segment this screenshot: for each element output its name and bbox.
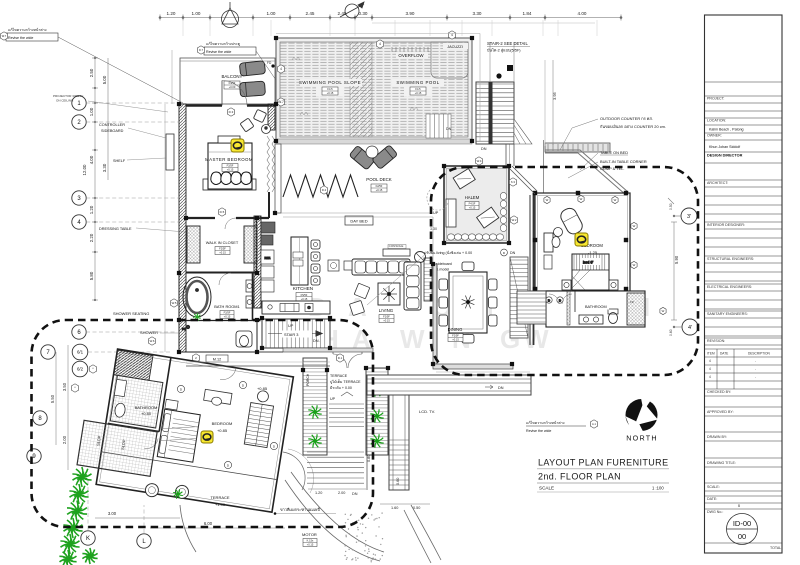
- svg-text:F2/5F: F2/5F: [452, 334, 459, 338]
- svg-text:K: K: [86, 536, 90, 542]
- svg-text:4: 4: [709, 367, 711, 371]
- svg-text:DESCRIPTION: DESCRIPTION: [748, 352, 770, 356]
- svg-text:แก้ไขความกว้างหน้าต่าง: แก้ไขความกว้างหน้าต่าง: [8, 27, 47, 32]
- svg-text:0.60: 0.60: [396, 478, 400, 485]
- svg-text:F2/5F: F2/5F: [224, 311, 231, 315]
- svg-text:DRAWN BY:: DRAWN BY:: [707, 435, 727, 439]
- svg-text:1.20: 1.20: [167, 11, 176, 16]
- svg-text:UP: UP: [433, 211, 439, 215]
- svg-text:W.5: W.5: [172, 301, 177, 305]
- svg-text:PROJECT:: PROJECT:: [707, 97, 725, 101]
- svg-text:Revise the wide: Revise the wide: [526, 429, 551, 433]
- svg-text:FD: FD: [267, 61, 272, 65]
- svg-text:B: B: [738, 504, 740, 508]
- svg-text:bed 6': bed 6': [583, 261, 594, 265]
- svg-text:MOTOR: MOTOR: [302, 532, 317, 537]
- svg-text:SIDEBOARD: SIDEBOARD: [101, 129, 124, 133]
- svg-text:3': 3': [687, 214, 691, 220]
- svg-text:STAIR 3: STAIR 3: [284, 332, 298, 337]
- svg-text:LOCATION:: LOCATION:: [707, 119, 726, 123]
- svg-text:3.95: 3.95: [552, 91, 557, 100]
- svg-text:ON CEILING: ON CEILING: [56, 99, 74, 103]
- svg-text:DATE:: DATE:: [707, 497, 717, 501]
- svg-text:TERRACE: TERRACE: [330, 374, 348, 378]
- svg-text:4: 4: [709, 375, 711, 379]
- svg-text:-: -: [755, 359, 756, 363]
- svg-text:+0.85: +0.85: [217, 428, 228, 433]
- svg-text:Revise the wide: Revise the wide: [206, 50, 231, 54]
- svg-text:DN: DN: [481, 147, 487, 151]
- svg-text:DATE: DATE: [720, 352, 728, 356]
- svg-text:Revise the wide: Revise the wide: [8, 36, 33, 40]
- svg-text:+0.15: +0.15: [301, 297, 308, 301]
- svg-text:WALK IN CLOSET: WALK IN CLOSET: [206, 240, 239, 245]
- svg-text:6/1: 6/1: [77, 350, 84, 355]
- svg-text:1.20: 1.20: [89, 205, 94, 214]
- svg-text:HALEM: HALEM: [465, 195, 480, 200]
- svg-text:F5/5F: F5/5F: [301, 293, 308, 297]
- svg-text:+0.15: +0.15: [227, 167, 234, 171]
- svg-text:+0.00: +0.00: [229, 85, 236, 89]
- svg-text:F2/5F: F2/5F: [227, 164, 234, 168]
- svg-text:1.00: 1.00: [267, 11, 276, 16]
- svg-text:DESIGN DIRECTOR: DESIGN DIRECTOR: [707, 154, 743, 158]
- svg-text:UP: UP: [288, 323, 294, 328]
- svg-text:+1.00: +1.00: [215, 502, 226, 507]
- svg-text:INTERIOR DESIGNER:: INTERIOR DESIGNER:: [707, 223, 745, 227]
- svg-text:JACUZZI: JACUZZI: [447, 45, 463, 49]
- svg-text:1.00: 1.00: [89, 107, 94, 116]
- svg-text:12.00: 12.00: [82, 164, 87, 176]
- svg-text:2.20: 2.20: [89, 233, 94, 242]
- svg-text:W: W: [633, 224, 636, 228]
- svg-text:4.00: 4.00: [578, 11, 587, 16]
- svg-text:+0.85: +0.85: [257, 386, 268, 391]
- svg-text:6.00: 6.00: [204, 521, 213, 526]
- svg-text:แก้ไขความกว้างประตู: แก้ไขความกว้างประตู: [206, 41, 241, 46]
- svg-text:+0.15: +0.15: [327, 91, 334, 95]
- svg-text:UP: UP: [330, 397, 336, 401]
- svg-text:LIVING: LIVING: [379, 308, 394, 313]
- svg-text:D.7: D.7: [199, 48, 204, 52]
- svg-text:F2/5F: F2/5F: [383, 315, 390, 319]
- svg-text:+0.15: +0.15: [219, 250, 226, 254]
- svg-text:W: W: [662, 309, 665, 313]
- svg-text:DRESSING TABLE: DRESSING TABLE: [99, 227, 132, 231]
- svg-text:0.50: 0.50: [413, 506, 420, 510]
- svg-text:W: W: [400, 324, 425, 354]
- svg-text:W: W: [580, 197, 583, 201]
- svg-text:PROJECTOR 300BTU: PROJECTOR 300BTU: [53, 94, 83, 98]
- svg-text:DN.: DN.: [313, 338, 320, 343]
- svg-text:BATHROOM: BATHROOM: [585, 305, 607, 309]
- svg-text:3.30: 3.30: [473, 11, 482, 16]
- svg-text:Khun Johan Siddolf: Khun Johan Siddolf: [709, 145, 740, 149]
- svg-text:4: 4: [280, 67, 282, 71]
- svg-text:1 :100: 1 :100: [652, 486, 664, 491]
- svg-text:0.80: 0.80: [367, 455, 371, 462]
- svg-text:ELECTRICAL ENGINEERS:: ELECTRICAL ENGINEERS:: [707, 285, 752, 289]
- svg-text:W.2: W.2: [512, 218, 517, 222]
- svg-text:1.84: 1.84: [523, 11, 532, 16]
- svg-text:DN: DN: [446, 127, 452, 131]
- svg-text:TOTAL:: TOTAL:: [770, 546, 782, 550]
- svg-text:1.20: 1.20: [315, 491, 322, 495]
- svg-text:D.3: D.3: [229, 110, 234, 114]
- svg-text:BUILT-IN TABLE CORNER: BUILT-IN TABLE CORNER: [600, 159, 647, 164]
- svg-text:4: 4: [709, 359, 711, 363]
- svg-text:KITCHEN: KITCHEN: [293, 286, 313, 291]
- svg-text:+0.15: +0.15: [469, 205, 476, 209]
- svg-text:TABLE ON BED: TABLE ON BED: [600, 150, 628, 155]
- svg-text:NORTH: NORTH: [626, 434, 657, 443]
- svg-text:sideboard: sideboard: [436, 262, 452, 266]
- svg-text:D.1: D.1: [338, 356, 343, 360]
- svg-text:REF.: REF.: [264, 256, 270, 260]
- svg-text:6.3: 6.3: [511, 180, 515, 184]
- svg-text:F4.5F: F4.5F: [469, 202, 476, 206]
- svg-text:W: W: [633, 263, 636, 267]
- svg-text:0.50: 0.50: [669, 203, 673, 210]
- svg-text:A.1: A.1: [592, 422, 596, 426]
- svg-text:1.60: 1.60: [391, 506, 398, 510]
- svg-text:2.45: 2.45: [306, 11, 315, 16]
- svg-text:DWG No.:: DWG No.:: [707, 510, 723, 514]
- svg-text:2.00: 2.00: [338, 491, 345, 495]
- svg-text:BATH ROOM1: BATH ROOM1: [214, 304, 239, 309]
- svg-text:2.50: 2.50: [89, 68, 94, 77]
- svg-text:SCALE:: SCALE:: [707, 485, 720, 489]
- svg-text:BEDROOM: BEDROOM: [212, 421, 233, 426]
- svg-text:2.00: 2.00: [62, 435, 67, 444]
- svg-text:SANITARY ENGINEERS:: SANITARY ENGINEERS:: [707, 312, 748, 316]
- svg-text:W: W: [614, 198, 617, 202]
- svg-text:มีระดับ + 0.00: มีระดับ + 0.00: [330, 385, 352, 390]
- svg-text:-: -: [755, 367, 756, 371]
- svg-text:SHOWER: SHOWER: [140, 330, 158, 335]
- svg-text:+0.15: +0.15: [307, 542, 314, 546]
- svg-text:OWNER:: OWNER:: [707, 134, 722, 138]
- svg-text:ITEM: ITEM: [707, 352, 715, 356]
- svg-text:SWIMMING POOL SLOPE: SWIMMING POOL SLOPE: [299, 80, 361, 85]
- svg-text:SHELF: SHELF: [113, 159, 126, 163]
- svg-text:กันขอบเงินลก อย่าง COUNTER 20: กันขอบเงินลก อย่าง COUNTER 20 cm.: [600, 124, 666, 129]
- svg-text:POOL DECK: POOL DECK: [366, 177, 392, 182]
- svg-text:STAIR-2 SEE DETAIL: STAIR-2 SEE DETAIL: [487, 41, 528, 46]
- svg-text:DN: DN: [352, 492, 358, 496]
- svg-text:SHOWER SEATING: SHOWER SEATING: [113, 311, 149, 316]
- svg-text:CHECKED BY:: CHECKED BY:: [707, 390, 731, 394]
- svg-text:W.7: W.7: [278, 100, 284, 104]
- svg-text:Kalim Beach , Patong: Kalim Beach , Patong: [709, 128, 744, 132]
- svg-text:W.6: W.6: [150, 339, 155, 343]
- svg-text:TERRACE: TERRACE: [210, 495, 229, 500]
- svg-text:1.00: 1.00: [192, 11, 201, 16]
- svg-text:0.30: 0.30: [359, 11, 368, 16]
- svg-text:-: -: [755, 375, 756, 379]
- svg-text:5.80: 5.80: [89, 271, 94, 280]
- svg-text:DINING: DINING: [448, 327, 463, 332]
- svg-text:F2/5F: F2/5F: [376, 184, 383, 188]
- svg-text:2nd. FLOOR PLAN: 2nd. FLOOR PLAN: [538, 472, 621, 482]
- svg-text:4.00: 4.00: [89, 155, 94, 164]
- svg-text:W.4: W.4: [477, 159, 482, 163]
- svg-text:DN: DN: [510, 251, 516, 255]
- svg-text:F2/5F: F2/5F: [219, 247, 226, 251]
- svg-text:BATHROOM: BATHROOM: [135, 405, 158, 410]
- svg-text:BALCONY: BALCONY: [222, 74, 243, 79]
- svg-text:ID-00: ID-00: [733, 519, 751, 528]
- svg-text:M.12: M.12: [213, 358, 221, 362]
- svg-text:00: 00: [738, 532, 746, 541]
- svg-text:3.30: 3.30: [430, 227, 437, 231]
- svg-text:6/2: 6/2: [77, 367, 84, 372]
- svg-text:บันได-2 สู่แบบ(5/5F): บันได-2 สู่แบบ(5/5F): [487, 48, 521, 53]
- svg-text:5.50: 5.50: [50, 394, 55, 403]
- svg-text:STRUCTURAL ENGINEERS:: STRUCTURAL ENGINEERS:: [707, 257, 754, 261]
- svg-text:3.30: 3.30: [102, 163, 107, 172]
- svg-text:D.2: D.2: [322, 188, 327, 192]
- svg-text:D.5: D.5: [220, 210, 225, 214]
- svg-text:แก้ไขความกว้างหน้าต่าง: แก้ไขความกว้างหน้าต่าง: [526, 420, 565, 425]
- svg-text:+0.15: +0.15: [224, 314, 231, 318]
- svg-text:SCALE: SCALE: [539, 486, 554, 491]
- svg-text:MASTER BEDROOM: MASTER BEDROOM: [205, 157, 253, 162]
- svg-text:F4.5: F4.5: [415, 87, 421, 91]
- svg-text:3.50: 3.50: [62, 382, 67, 391]
- svg-text:DRAWING TITLE:: DRAWING TITLE:: [707, 461, 736, 465]
- svg-text:LCD. TV.: LCD. TV.: [419, 409, 435, 414]
- svg-text:FD: FD: [630, 300, 634, 304]
- svg-text:5.90: 5.90: [674, 255, 679, 264]
- svg-text:OUTDOOR COUNTER กร คส.: OUTDOOR COUNTER กร คส.: [600, 116, 653, 121]
- svg-text:LAYOUT PLAN FURENITURE: LAYOUT PLAN FURENITURE: [538, 458, 669, 468]
- svg-text:K.15s: K.15s: [307, 539, 314, 543]
- svg-text:+0.15: +0.15: [415, 91, 422, 95]
- svg-text:5.00: 5.00: [102, 75, 107, 84]
- svg-text:APPROVED BY:: APPROVED BY:: [707, 410, 734, 414]
- svg-text:ARCHITECT:: ARCHITECT:: [707, 181, 728, 185]
- svg-text:DN: DN: [498, 386, 504, 390]
- svg-text:+0.15: +0.15: [383, 318, 390, 322]
- svg-text:F4.5: F4.5: [327, 87, 333, 91]
- svg-text:& model: & model: [436, 268, 449, 272]
- svg-text:DAY BED: DAY BED: [350, 219, 367, 224]
- svg-text:+0.15: +0.15: [376, 188, 383, 192]
- svg-text:4: 4: [379, 42, 381, 46]
- svg-text:OVERFLOW: OVERFLOW: [398, 53, 424, 58]
- svg-text:W.7: W.7: [2, 34, 7, 38]
- svg-text:+0.15: +0.15: [452, 337, 459, 341]
- svg-text:CONTROLLER: CONTROLLER: [99, 123, 125, 127]
- svg-text:3.90: 3.90: [406, 11, 415, 16]
- svg-text:+0.80: +0.80: [141, 411, 152, 416]
- svg-text:0.60: 0.60: [669, 329, 673, 336]
- svg-text:4': 4': [688, 325, 692, 331]
- svg-text:PORCH: PORCH: [306, 373, 310, 386]
- svg-text:3.00: 3.00: [108, 511, 117, 516]
- svg-text:SWIMMING POOL: SWIMMING POOL: [396, 80, 439, 85]
- svg-text:REVISION:: REVISION:: [707, 339, 725, 343]
- svg-text:W: W: [546, 198, 549, 202]
